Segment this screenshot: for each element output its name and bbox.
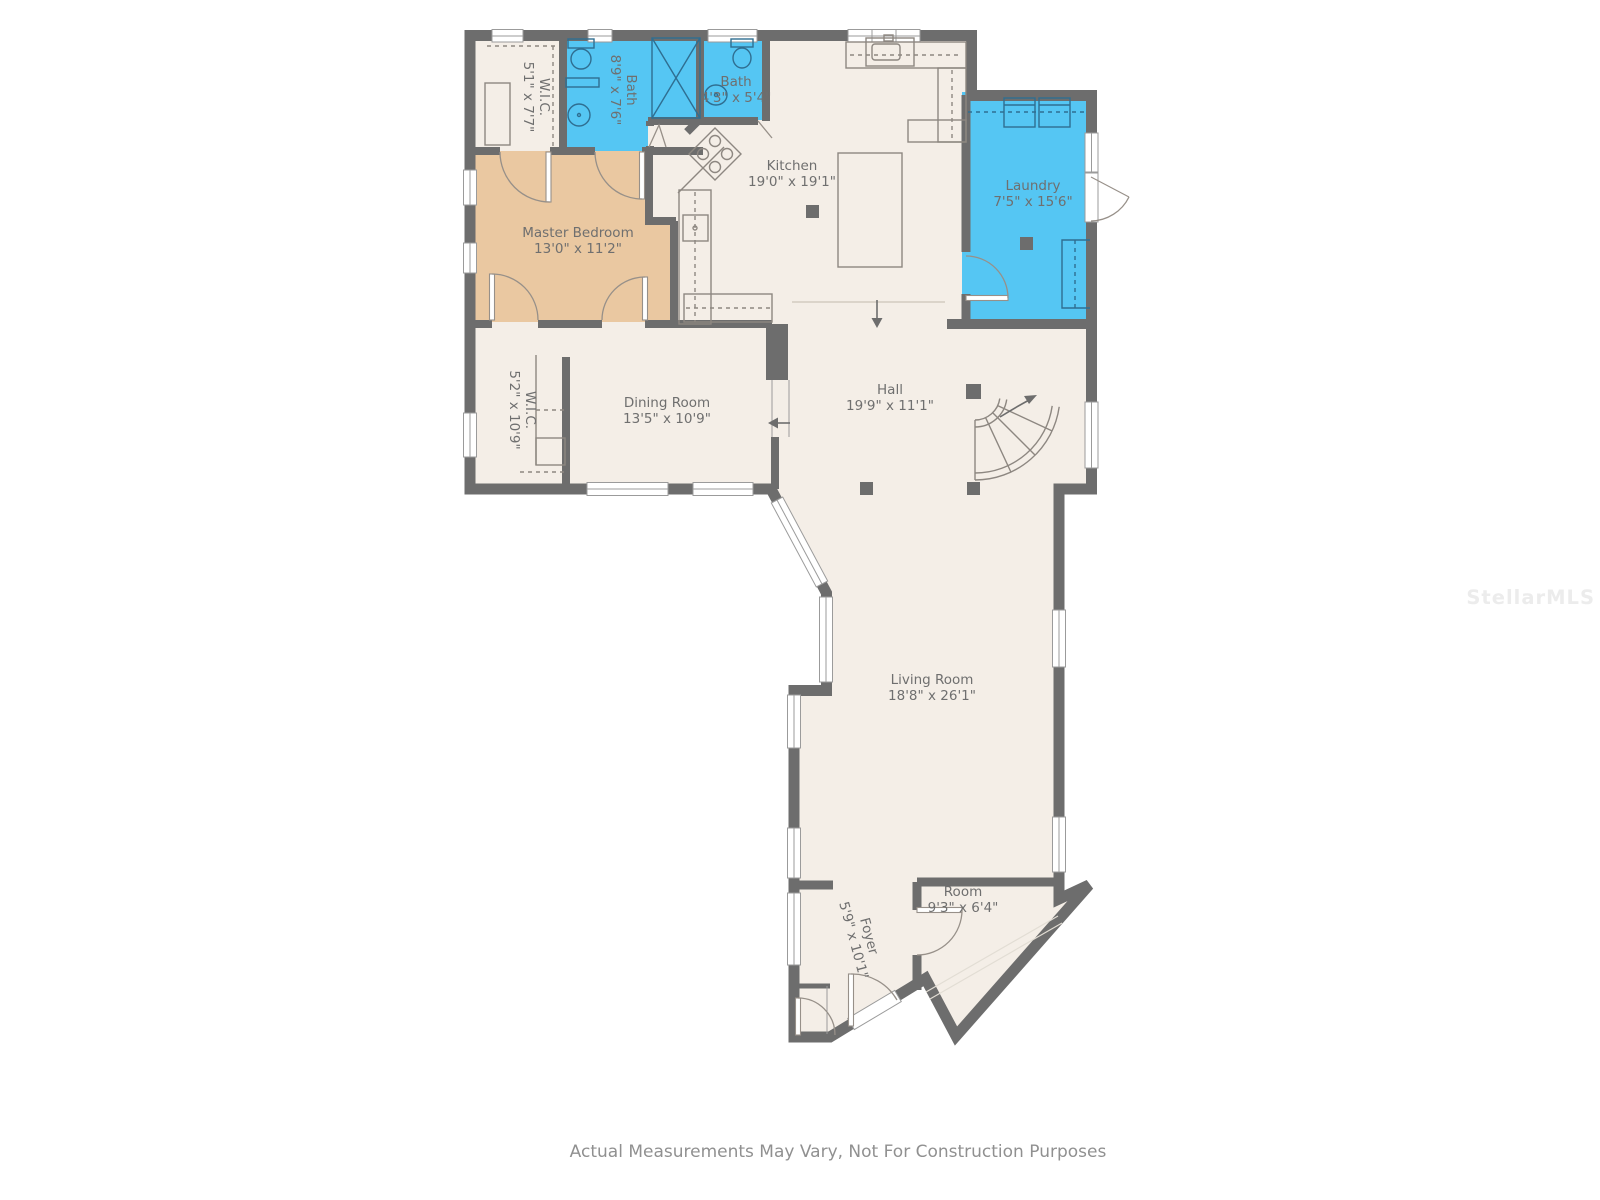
room-dims: 4'3" x 5'4" (701, 90, 772, 106)
room-name: Room (944, 884, 982, 900)
room-name: Living Room (891, 672, 974, 688)
disclaimer-text: Actual Measurements May Vary, Not For Co… (570, 1142, 1107, 1162)
room-name: W.I.C. (536, 78, 552, 116)
room-name: Hall (877, 382, 903, 398)
room-dims: 5'2" x 10'9" (506, 370, 522, 449)
room-label-dining: Dining Room 13'5" x 10'9" (623, 395, 711, 427)
window-living-left (788, 695, 801, 965)
room-name: Bath (720, 74, 751, 90)
room-dims: 8'9" x 7'6" (607, 55, 623, 126)
room-dims: 7'5" x 15'6" (993, 194, 1072, 210)
room-name: Laundry (1005, 178, 1060, 194)
column-stairs (966, 384, 981, 399)
room-name: Kitchen (767, 158, 818, 174)
room-label-living: Living Room 18'8" x 26'1" (888, 672, 976, 704)
door-laundry-exterior (1085, 173, 1129, 222)
kitchen-island (838, 153, 902, 267)
stellar-mls-watermark: StellarMLS (1466, 586, 1595, 609)
column-hall-right (967, 482, 980, 495)
floor-plan: W.I.C. 5'1" x 7'7" Bath 8'9" x 7'6" Bath… (0, 0, 1600, 1200)
column-laundry (1020, 237, 1033, 250)
room-name: Bath (623, 74, 639, 105)
room-name: Master Bedroom (522, 225, 633, 241)
dining-hall-wall-stub (766, 324, 788, 380)
room-name: Dining Room (624, 395, 710, 411)
room-name: W.I.C. (522, 391, 538, 429)
room-dims: 19'9" x 11'1" (846, 398, 934, 414)
room-dims: 9'3" x 6'4" (928, 900, 999, 916)
room-label-master-bedroom: Master Bedroom 13'0" x 11'2" (522, 225, 633, 257)
column-kitchen (806, 205, 819, 218)
room-dims: 5'1" x 7'7" (520, 62, 536, 133)
room-dims: 13'0" x 11'2" (534, 241, 622, 257)
floor-plan-page: W.I.C. 5'1" x 7'7" Bath 8'9" x 7'6" Bath… (0, 0, 1600, 1200)
room-dims: 18'8" x 26'1" (888, 688, 976, 704)
room-dims: 13'5" x 10'9" (623, 411, 711, 427)
column-hall-left (860, 482, 873, 495)
room-dims: 19'0" x 19'1" (748, 174, 836, 190)
